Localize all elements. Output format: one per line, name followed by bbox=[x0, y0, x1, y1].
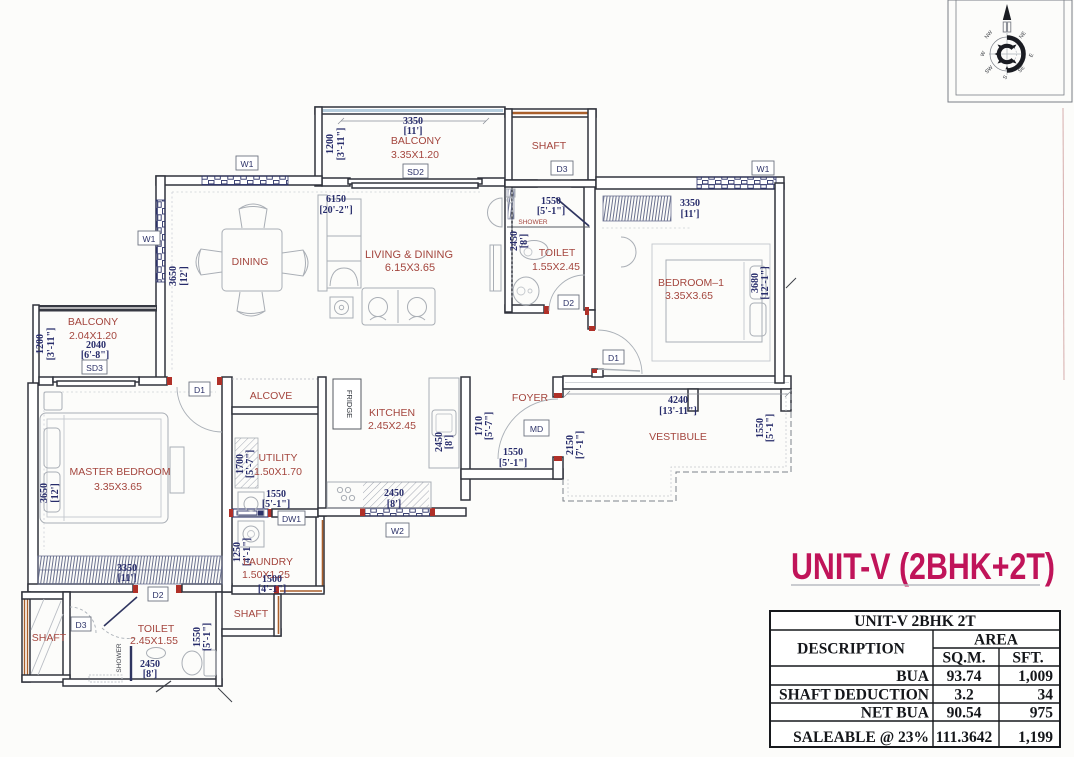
svg-text:1,009: 1,009 bbox=[1018, 668, 1053, 685]
svg-text:[5'-7"]: [5'-7"] bbox=[484, 412, 495, 440]
svg-text:[12']: [12'] bbox=[179, 266, 190, 285]
svg-text:W2: W2 bbox=[391, 526, 404, 536]
svg-text:[6'-8"]: [6'-8"] bbox=[81, 350, 109, 361]
svg-text:90.54: 90.54 bbox=[947, 705, 982, 722]
svg-text:34: 34 bbox=[1038, 687, 1054, 704]
svg-text:SALEABLE @ 23%: SALEABLE @ 23% bbox=[793, 729, 929, 746]
svg-text:[4'-1"]: [4'-1"] bbox=[258, 584, 286, 595]
svg-text:UNIT-V 2BHK 2T: UNIT-V 2BHK 2T bbox=[854, 613, 976, 630]
svg-text:3.35X1.20: 3.35X1.20 bbox=[391, 149, 439, 161]
svg-text:SHAFT DEDUCTION: SHAFT DEDUCTION bbox=[779, 687, 929, 704]
svg-text:TOILET: TOILET bbox=[138, 623, 175, 635]
svg-text:LIVING & DINING: LIVING & DINING bbox=[365, 249, 453, 261]
svg-text:[12'-1"]: [12'-1"] bbox=[760, 266, 771, 299]
svg-text:[5'-1"]: [5'-1"] bbox=[499, 458, 527, 469]
svg-text:1200: 1200 bbox=[35, 334, 46, 354]
svg-text:W1: W1 bbox=[757, 164, 770, 174]
svg-text:FOYER: FOYER bbox=[512, 392, 549, 404]
svg-text:1.55X2.45: 1.55X2.45 bbox=[532, 261, 580, 273]
svg-text:SHOWER: SHOWER bbox=[116, 643, 123, 673]
svg-text:3650: 3650 bbox=[168, 266, 179, 286]
svg-text:2.45X2.45: 2.45X2.45 bbox=[368, 420, 416, 432]
svg-text:[3'-11"]: [3'-11"] bbox=[46, 328, 57, 361]
svg-text:FRIDGE: FRIDGE bbox=[345, 390, 354, 418]
svg-text:93.74: 93.74 bbox=[947, 668, 982, 685]
svg-text:4240: 4240 bbox=[668, 395, 688, 406]
svg-text:1,199: 1,199 bbox=[1018, 729, 1053, 746]
svg-text:SD2: SD2 bbox=[407, 167, 424, 177]
svg-text:SHAFT: SHAFT bbox=[32, 632, 67, 644]
svg-text:[12']: [12'] bbox=[50, 483, 61, 502]
svg-text:[8']: [8'] bbox=[519, 234, 530, 248]
svg-text:[8']: [8'] bbox=[143, 669, 157, 680]
svg-text:SQ.M.: SQ.M. bbox=[942, 650, 985, 667]
svg-text:VESTIBULE: VESTIBULE bbox=[649, 431, 707, 443]
svg-text:SFT.: SFT. bbox=[1012, 650, 1043, 667]
svg-text:[8']: [8'] bbox=[387, 499, 401, 510]
svg-text:BALCONY: BALCONY bbox=[68, 316, 118, 328]
svg-text:[11']: [11'] bbox=[118, 573, 137, 584]
svg-text:BUA: BUA bbox=[896, 668, 930, 685]
svg-text:ALCOVE: ALCOVE bbox=[250, 390, 293, 402]
svg-text:[3'-11"]: [3'-11"] bbox=[336, 128, 347, 161]
svg-text:SHAFT: SHAFT bbox=[234, 608, 269, 620]
svg-text:LAUNDRY: LAUNDRY bbox=[243, 556, 293, 568]
svg-text:UNIT-V (2BHK+2T): UNIT-V (2BHK+2T) bbox=[791, 546, 1055, 587]
svg-text:BALCONY: BALCONY bbox=[391, 135, 441, 147]
svg-text:D3: D3 bbox=[76, 620, 87, 630]
svg-text:[11']: [11'] bbox=[681, 209, 700, 220]
svg-text:AREA: AREA bbox=[974, 632, 1019, 649]
svg-text:3650: 3650 bbox=[39, 483, 50, 503]
svg-text:3350: 3350 bbox=[680, 198, 700, 209]
svg-text:6.15X3.65: 6.15X3.65 bbox=[385, 262, 435, 274]
svg-text:1.50X1.70: 1.50X1.70 bbox=[254, 466, 302, 478]
svg-text:D2: D2 bbox=[563, 298, 574, 308]
svg-text:[5'-1"]: [5'-1"] bbox=[202, 623, 213, 651]
svg-text:BEDROOM–1: BEDROOM–1 bbox=[658, 277, 724, 289]
svg-text:DINING: DINING bbox=[232, 256, 269, 268]
svg-text:2.45X1.55: 2.45X1.55 bbox=[130, 635, 178, 647]
svg-text:D1: D1 bbox=[194, 385, 205, 395]
svg-text:W1: W1 bbox=[143, 234, 156, 244]
svg-text:D3: D3 bbox=[557, 164, 568, 174]
svg-text:MD: MD bbox=[530, 424, 543, 434]
svg-text:3.35X3.65: 3.35X3.65 bbox=[665, 290, 713, 302]
svg-text:3.2: 3.2 bbox=[954, 687, 974, 704]
svg-text:[8']: [8'] bbox=[444, 435, 455, 449]
svg-text:DW1: DW1 bbox=[282, 514, 301, 524]
svg-text:1550: 1550 bbox=[503, 447, 523, 458]
svg-text:SHOWER: SHOWER bbox=[518, 219, 548, 226]
svg-text:DESCRIPTION: DESCRIPTION bbox=[797, 641, 905, 658]
svg-text:[7'-1"]: [7'-1"] bbox=[575, 431, 586, 459]
svg-text:D2: D2 bbox=[153, 590, 164, 600]
svg-text:[20'-2"]: [20'-2"] bbox=[319, 205, 352, 216]
svg-text:KITCHEN: KITCHEN bbox=[369, 407, 415, 419]
svg-text:TOILET: TOILET bbox=[539, 247, 576, 259]
svg-text:SD3: SD3 bbox=[86, 363, 103, 373]
svg-text:MASTER BEDROOM: MASTER BEDROOM bbox=[70, 466, 171, 478]
svg-text:UTILITY: UTILITY bbox=[258, 452, 297, 464]
svg-text:D1: D1 bbox=[608, 353, 619, 363]
svg-text:111.3642: 111.3642 bbox=[936, 729, 993, 746]
svg-text:975: 975 bbox=[1030, 705, 1054, 722]
svg-text:NET BUA: NET BUA bbox=[861, 705, 930, 722]
svg-text:[5'-1"]: [5'-1"] bbox=[262, 499, 290, 510]
svg-text:6150: 6150 bbox=[326, 194, 346, 205]
svg-text:2450: 2450 bbox=[384, 488, 404, 499]
svg-text:SHAFT: SHAFT bbox=[532, 140, 567, 152]
svg-text:1200: 1200 bbox=[325, 134, 336, 154]
svg-text:[5'-1"]: [5'-1"] bbox=[537, 206, 565, 217]
svg-text:[13'-11"]: [13'-11"] bbox=[659, 406, 697, 417]
svg-text:3.35X3.65: 3.35X3.65 bbox=[94, 481, 142, 493]
svg-text:[5'-1"]: [5'-1"] bbox=[765, 414, 776, 442]
svg-text:W1: W1 bbox=[241, 159, 254, 169]
